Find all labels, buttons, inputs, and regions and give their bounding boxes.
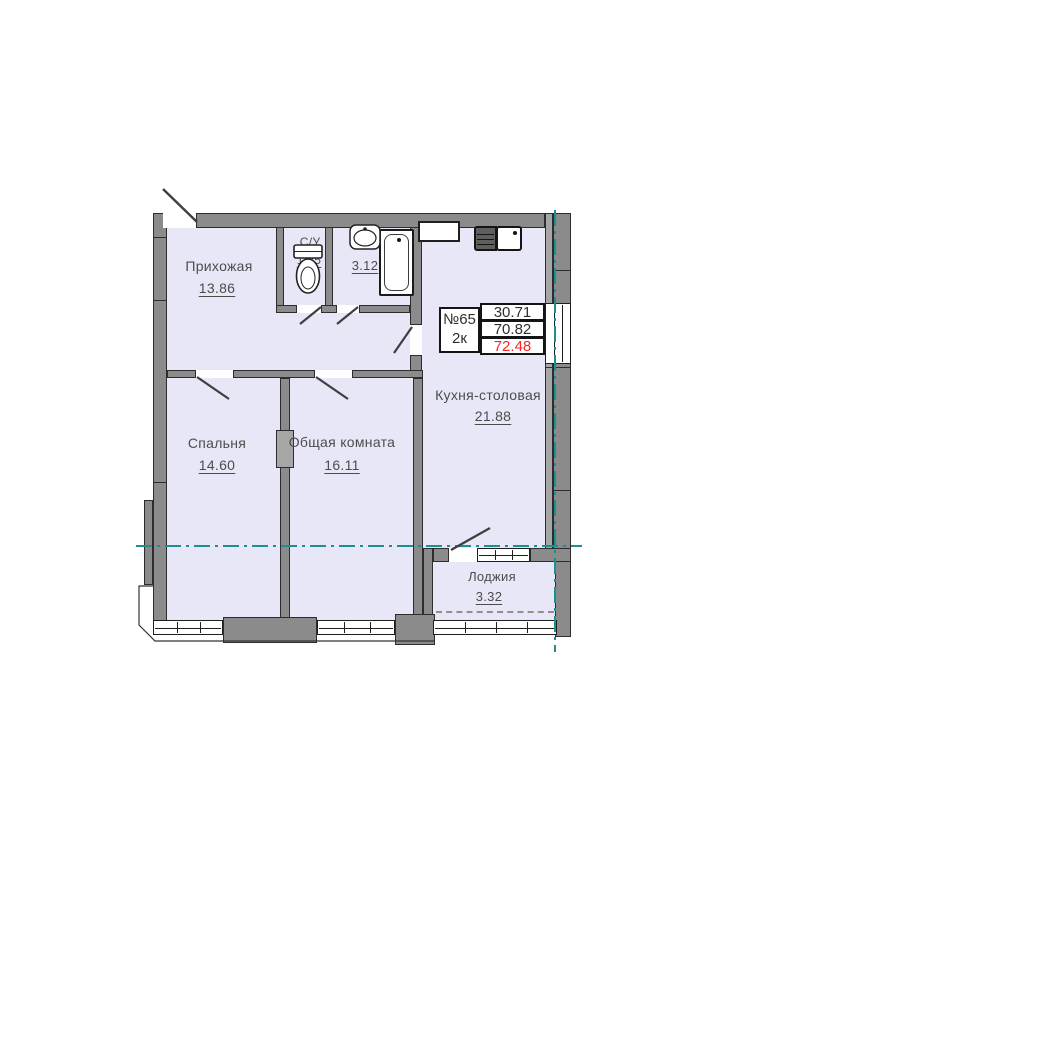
kitchen-faucet-dot	[513, 231, 517, 235]
room-area-living: 16.11	[324, 457, 360, 473]
hall-rooms-wall-seg2	[233, 370, 315, 378]
wc-bottom-wall-seg1	[276, 305, 297, 313]
wc1-door-opening	[297, 305, 321, 313]
loggia-left-wall	[423, 548, 433, 620]
room-area-bedroom: 14.60	[199, 457, 236, 473]
left-wall-joint	[153, 482, 167, 483]
balcony-door-opening	[449, 548, 477, 562]
left-wall	[153, 213, 167, 625]
bottom-wall-center-pier	[223, 617, 317, 643]
wc-bottom-wall-seg3	[359, 305, 410, 313]
living-kitchen-wall	[413, 378, 423, 620]
entry-door-opening	[163, 213, 196, 228]
left-wall-joint	[153, 300, 167, 301]
room-area-kitchen: 21.88	[475, 408, 512, 424]
loggia-glazing	[433, 620, 557, 635]
bathtub-icon	[379, 229, 414, 296]
floor-plan: Прихожая 13.86 С/У 1.25 С/У 3.12 Кухня-с…	[0, 0, 1041, 1041]
unit-total-area-cell: 72.48	[480, 337, 545, 355]
bedroom-window	[153, 620, 223, 635]
room-label-living: Общая комната	[289, 434, 396, 450]
room-label-bedroom: Спальня	[188, 435, 246, 451]
section-axis-vertical	[554, 210, 556, 652]
bedroom-living-wall	[280, 378, 290, 622]
wc2-door-opening	[337, 305, 359, 313]
bottom-wall-right-pier	[395, 614, 435, 645]
section-axis-horizontal	[136, 545, 582, 547]
hall-rooms-wall-seg3	[352, 370, 423, 378]
left-wall-joint	[153, 237, 167, 238]
vent-shaft-niche	[418, 221, 460, 242]
living-window	[317, 620, 395, 635]
bedroom-door-opening	[196, 370, 233, 378]
unit-living-area-cell: 30.71	[480, 303, 545, 321]
loggia-top-wall-seg2	[530, 548, 571, 562]
right-wall-inner-layer	[545, 213, 553, 560]
kitchen-loggia-window	[477, 548, 530, 562]
room-label-kitchen: Кухня-столовая	[435, 387, 541, 403]
hall-rooms-wall-seg1	[167, 370, 196, 378]
room-label-hallway: Прихожая	[185, 258, 252, 274]
left-outer-pilaster	[144, 500, 153, 585]
room-area-hallway: 13.86	[199, 280, 236, 296]
right-wall-joint	[545, 367, 571, 368]
loggia-top-wall-seg1	[433, 548, 449, 562]
wc-bottom-wall-seg2	[321, 305, 337, 313]
kitchen-sink-drainer-icon	[474, 226, 497, 251]
kitchen-right-window	[545, 303, 571, 364]
room-area-wc2: 3.12	[352, 258, 379, 273]
loggia-parapet-dashed-line	[436, 611, 554, 613]
room-area-loggia: 3.32	[476, 589, 503, 604]
room-label-loggia: Лоджия	[468, 569, 516, 584]
living-door-opening	[315, 370, 352, 378]
unit-info-cell: №65 2к	[439, 307, 480, 353]
kitchen-sink-basin-icon	[496, 226, 522, 251]
unit-main-area-cell: 70.82	[480, 320, 545, 338]
wc-divider-wall	[325, 227, 333, 313]
unit-number: №65	[443, 311, 476, 330]
unit-type: 2к	[452, 330, 467, 349]
wc1-left-wall	[276, 227, 284, 313]
kitchen-door-opening	[410, 325, 422, 355]
toilet-icon	[291, 243, 325, 297]
washbasin-icon	[349, 224, 381, 250]
